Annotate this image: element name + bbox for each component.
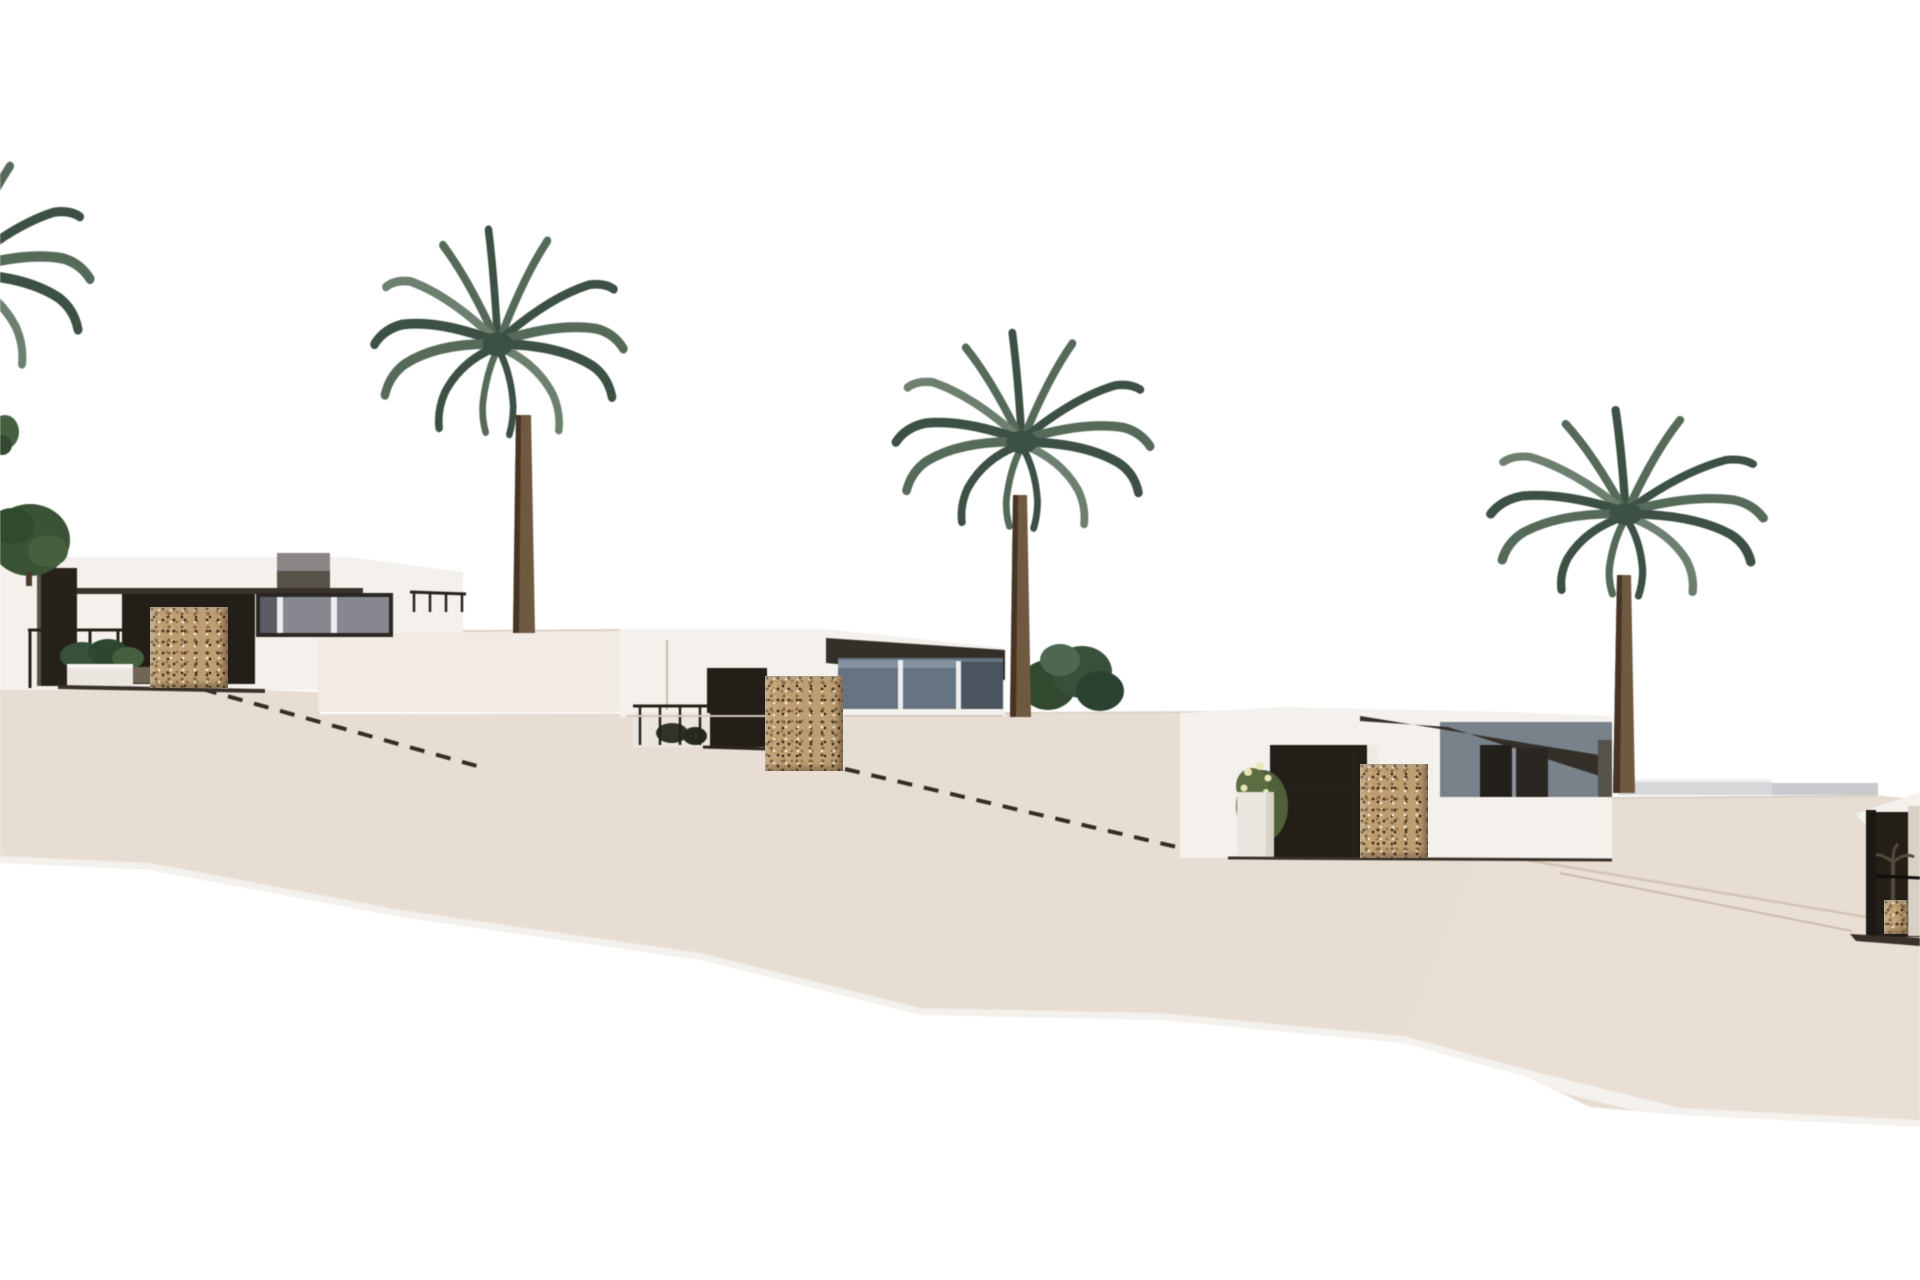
upper-deck-wall — [318, 631, 626, 712]
villa-1-window-mullion-2 — [331, 597, 337, 633]
villa-1-roof-box-top — [277, 553, 330, 571]
palm-1-crown — [0, 155, 90, 369]
villa-3-window-mullion — [1512, 748, 1516, 797]
shrub-center — [1020, 644, 1124, 711]
palm-tree-1 — [0, 155, 90, 369]
stone-mosaic-pillar-2 — [765, 676, 843, 771]
horizon-walls — [1618, 779, 1878, 795]
stone-mosaic-pillar-4 — [1884, 900, 1908, 934]
stone-mosaic-pillar-1 — [150, 607, 228, 688]
villa-2-opening-shadow — [703, 747, 770, 749]
villa-2-glass-wall — [838, 658, 1003, 709]
architectural-render-scene — [0, 0, 1920, 1280]
stone-mosaic-pillar-3 — [1360, 764, 1428, 858]
palm-4-crown — [1491, 410, 1763, 596]
villa-1-roof-box — [277, 571, 330, 590]
horizon-wall-2 — [1772, 783, 1878, 795]
horizon-wall-1-cap — [1618, 779, 1772, 782]
villa-4-right-strip — [1908, 806, 1920, 936]
villa-3-window-1 — [1480, 745, 1512, 797]
villa-4-railing — [1876, 876, 1920, 878]
villa-1-dark-pillar-highlight — [37, 568, 41, 686]
villa-3-planter-shade — [1266, 792, 1274, 858]
villa-1-window — [256, 593, 393, 637]
villa-2-terrace-opening — [707, 668, 767, 747]
villa-3-wall-edge — [1598, 740, 1612, 797]
villa-4-corner-post — [1866, 810, 1876, 937]
render-canvas — [0, 0, 1920, 1280]
villa-3-base-shadow — [1228, 858, 1612, 860]
villa-1-window-pane-dark — [260, 597, 277, 633]
villa-1-window-mullion-1 — [277, 597, 283, 633]
palm-2-crown — [375, 230, 624, 435]
left-edge-tuft — [0, 415, 19, 455]
villa-3-window-2 — [1516, 748, 1548, 797]
